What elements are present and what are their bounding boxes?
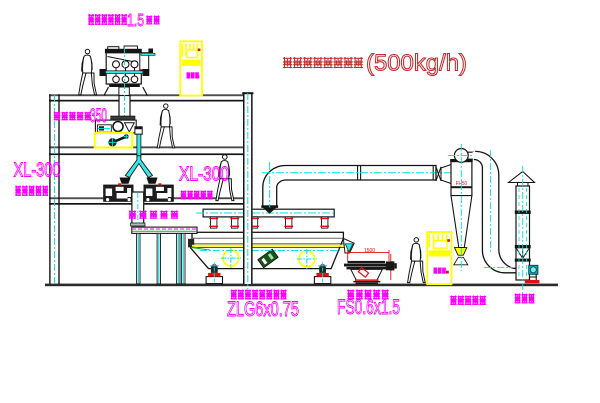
svg-text:XL-300: XL-300	[14, 160, 61, 182]
svg-text:1.5: 1.5	[127, 10, 144, 30]
svg-text:1500: 1500	[364, 248, 375, 254]
svg-text:XL-300: XL-300	[179, 164, 229, 186]
svg-text:350: 350	[90, 106, 107, 127]
svg-text:FS0.6x1.5: FS0.6x1.5	[337, 296, 400, 319]
svg-text:(500kg/h): (500kg/h)	[366, 49, 467, 75]
svg-text:ZLG6x0.75: ZLG6x0.75	[227, 298, 299, 321]
